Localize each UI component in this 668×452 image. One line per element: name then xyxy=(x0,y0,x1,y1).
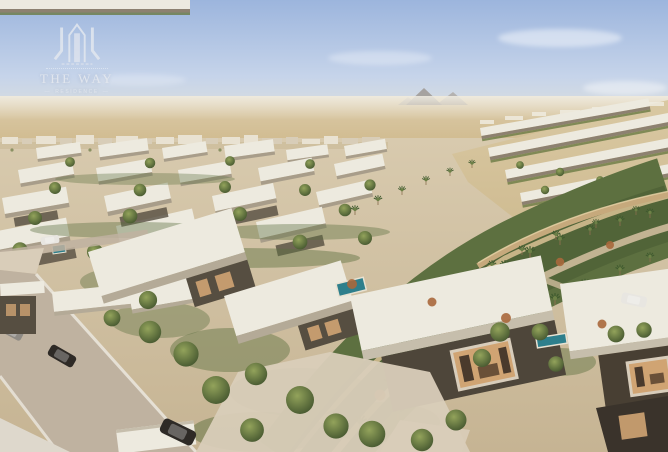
scene-canvas xyxy=(0,0,668,452)
aerial-render-image: THE WAY — RESIDENCE — xyxy=(0,0,668,452)
